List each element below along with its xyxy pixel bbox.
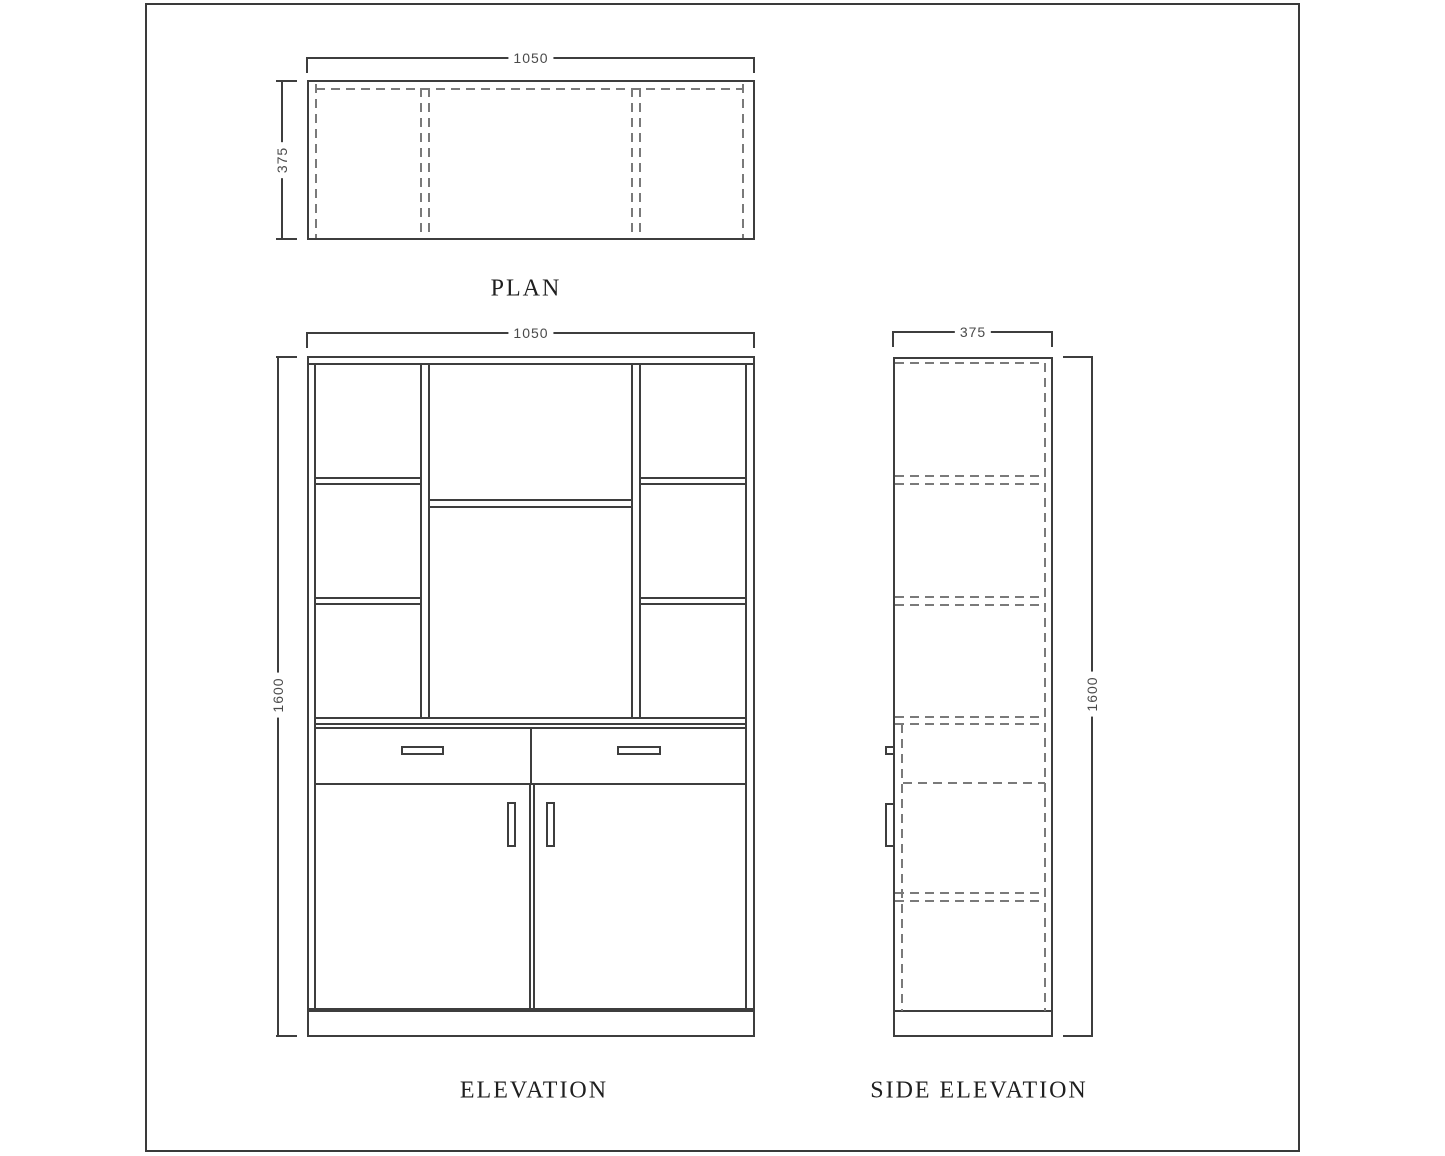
side-plinth-top-line (895, 1010, 1051, 1012)
side-top-board-dashed-line (895, 362, 1045, 364)
side-back-panel-dashed-line (1044, 363, 1046, 1011)
side-inner-shelf-dashed-line-b (895, 900, 1045, 902)
side-shelf1-dashed-line-b (895, 483, 1045, 485)
drawing-canvas: 1050 375 PLAN 1050 1600 (0, 0, 1445, 1156)
plan-title: PLAN (491, 276, 562, 303)
side-dim-height-tick-top (1063, 356, 1093, 358)
side-dim-depth-label: 375 (955, 324, 991, 340)
elevation-dim-height-label: 1600 (270, 672, 286, 717)
side-shelf2-dashed-line-a (895, 596, 1045, 598)
side-door-handle-profile (885, 803, 895, 847)
side-drawer-bottom-dashed-line (903, 782, 1045, 784)
side-shelf1-dashed-line-a (895, 475, 1045, 477)
side-dim-height-tick-bottom (1063, 1035, 1093, 1037)
side-dim-height-label: 1600 (1084, 671, 1100, 716)
side-front-panel-dashed-line (901, 724, 903, 1011)
side-dim-depth-tick-left (892, 331, 894, 347)
plan-dim-width-label: 1050 (508, 50, 553, 66)
side-elevation-view: 375 1600 SIDE ELEVATION (0, 0, 1445, 1156)
side-shelf2-dashed-line-b (895, 604, 1045, 606)
side-drawer-handle-profile (885, 746, 895, 755)
plan-dim-depth-label: 375 (274, 142, 290, 178)
side-inner-shelf-dashed-line-a (895, 892, 1045, 894)
side-dim-depth-tick-right (1051, 331, 1053, 347)
side-counter-board-dashed-line-b (895, 723, 1045, 725)
elevation-dim-width-label: 1050 (508, 325, 553, 341)
side-counter-board-dashed-line-a (895, 716, 1045, 718)
elevation-title: ELEVATION (460, 1078, 608, 1105)
side-outline (893, 357, 1053, 1037)
side-elevation-title: SIDE ELEVATION (870, 1078, 1088, 1105)
